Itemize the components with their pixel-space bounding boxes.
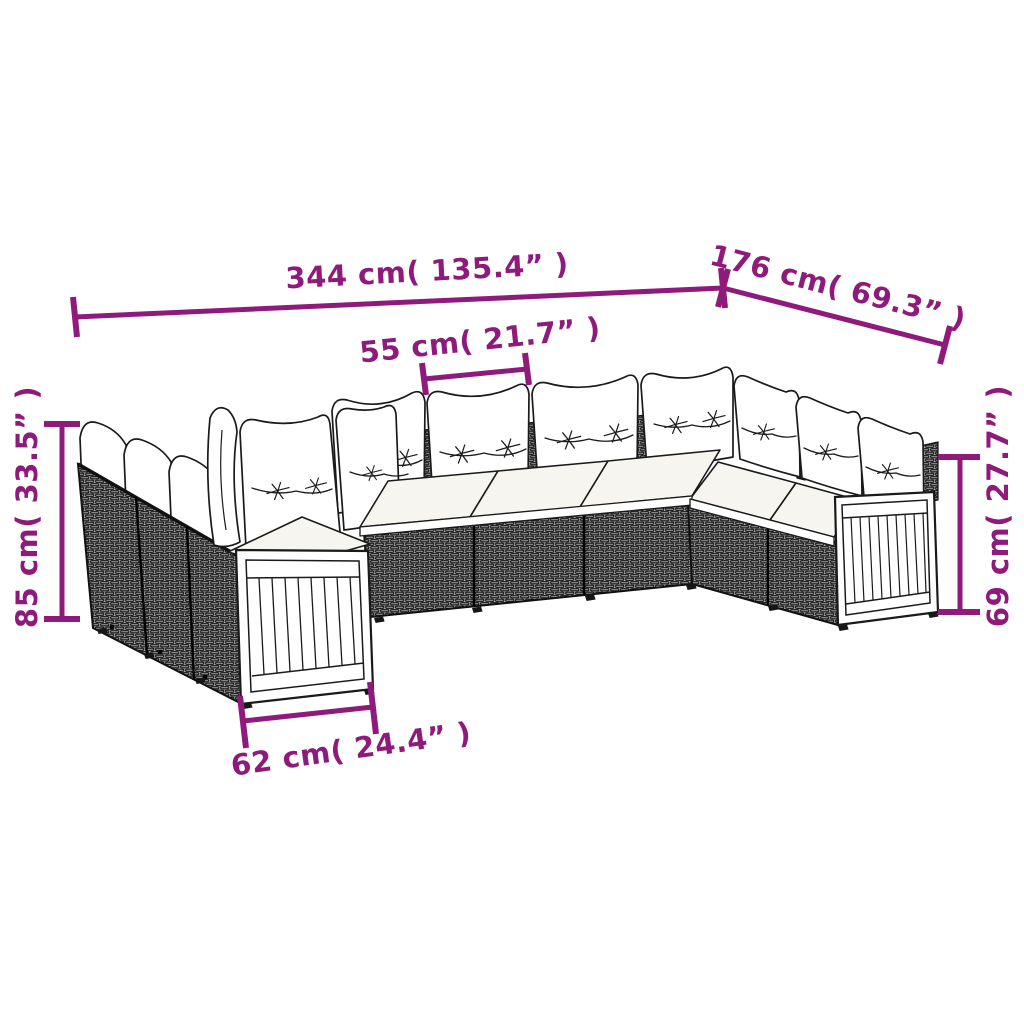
dimension-line-back-height	[44, 424, 80, 619]
left-wood-panel	[236, 550, 373, 704]
right-wood-panel	[835, 492, 938, 625]
dimension-diagram: 344 cm( 135.4” ) 176 cm( 69.3” ) 55 cm( …	[0, 0, 1024, 1024]
dimension-label-back-height: 85 cm( 33.5” )	[10, 386, 44, 628]
dimension-label-arm-height: 69 cm( 27.7” )	[981, 385, 1015, 627]
dimension-line-arm-height	[938, 457, 980, 612]
sofa-illustration	[0, 0, 1024, 1024]
